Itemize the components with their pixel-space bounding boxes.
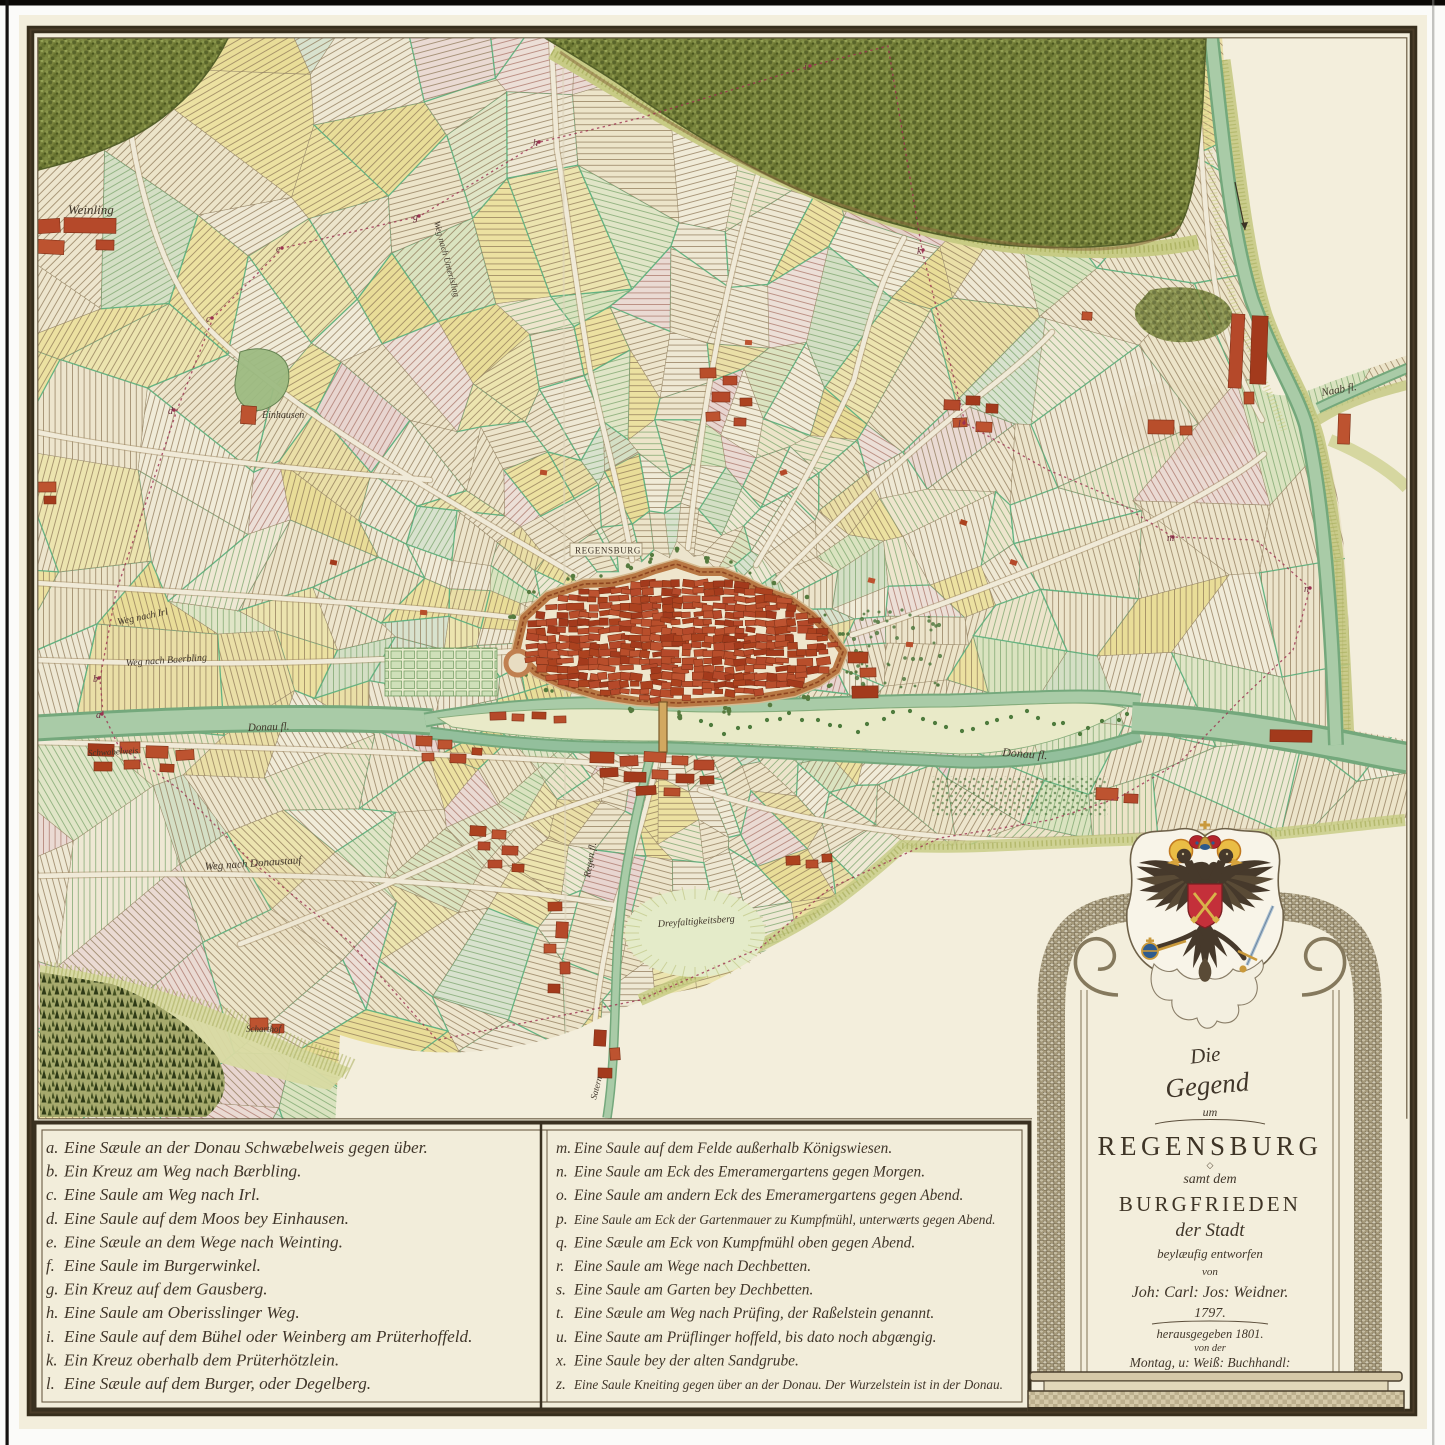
svg-text:x.: x. [555,1352,567,1369]
svg-text:beylæufig entworfen: beylæufig entworfen [1157,1246,1263,1261]
svg-text:Eine Saule auf dem Moos bey Ei: Eine Saule auf dem Moos bey Einhausen. [63,1209,349,1228]
svg-text:Ein Kreuz auf dem Gausberg.: Ein Kreuz auf dem Gausberg. [63,1280,268,1299]
svg-text:Scharthof: Scharthof [246,1024,282,1034]
svg-text:f.: f. [46,1256,55,1275]
svg-text:a.: a. [46,1138,58,1157]
svg-text:b.: b. [46,1162,58,1181]
svg-text:Eine Saule am andern Eck des E: Eine Saule am andern Eck des Emeramergar… [573,1187,963,1204]
svg-text:z.: z. [555,1376,566,1393]
svg-text:von der: von der [1194,1343,1227,1354]
svg-text:Eine Saule Kneiting gegen über: Eine Saule Kneiting gegen über an der Do… [573,1377,1003,1392]
svg-text:Eine Sæule am Eck von Kumpfmüh: Eine Sæule am Eck von Kumpfmühl oben geg… [573,1234,915,1251]
svg-text:r.: r. [556,1258,564,1275]
svg-text:l.: l. [46,1374,55,1393]
svg-text:REGENSBURG: REGENSBURG [575,546,641,556]
svg-text:h: h [533,138,538,149]
svg-text:Eine Saule am Weg nach Irl.: Eine Saule am Weg nach Irl. [63,1185,260,1204]
svg-text:Eine Saule am Oberisslinger We: Eine Saule am Oberisslinger Weg. [63,1303,300,1322]
svg-text:o.: o. [556,1187,568,1204]
svg-text:n.: n. [556,1164,568,1181]
svg-text:u.: u. [556,1329,568,1346]
svg-text:Einhausen: Einhausen [261,410,304,421]
svg-text:d.: d. [46,1209,58,1228]
svg-text:m: m [1167,533,1174,544]
svg-text:Eine Sæule auf dem Burger, ode: Eine Sæule auf dem Burger, oder Degelber… [63,1374,371,1393]
svg-text:g.: g. [46,1280,58,1299]
svg-text:Eine Saule am Garten bey Dechb: Eine Saule am Garten bey Dechbetten. [573,1282,813,1299]
svg-text:Joh: Carl: Jos: Weidner.: Joh: Carl: Jos: Weidner. [1132,1284,1289,1301]
svg-text:Donau fl.: Donau fl. [247,721,290,734]
svg-text:k: k [917,246,922,257]
svg-text:von: von [1202,1266,1218,1278]
svg-text:Ein Kreuz am Weg nach Bærbling: Ein Kreuz am Weg nach Bærbling. [63,1162,301,1181]
svg-text:Eine Saule am Eck der Gartenma: Eine Saule am Eck der Gartenmauer zu Kum… [573,1212,996,1227]
svg-text:c: c [206,314,211,325]
svg-text:p.: p. [555,1211,568,1228]
svg-text:q.: q. [556,1234,568,1251]
svg-text:um: um [1203,1105,1218,1119]
svg-text:Eine Saule auf dem Felde außer: Eine Saule auf dem Felde außerhalb König… [573,1140,892,1157]
svg-text:Eine Sæule an der Donau Schwæb: Eine Sæule an der Donau Schwæbelweis geg… [63,1138,428,1157]
svg-text:e: e [276,244,281,255]
svg-text:Eine Saule am Wege nach Dechbe: Eine Saule am Wege nach Dechbetten. [573,1258,811,1275]
svg-text:Weinling: Weinling [68,202,114,217]
svg-text:k.: k. [46,1350,57,1369]
svg-text:t.: t. [556,1305,564,1322]
svg-text:e.: e. [46,1232,57,1251]
svg-text:Die: Die [1188,1042,1222,1069]
svg-text:i.: i. [46,1327,55,1346]
svg-text:REGENSBURG: REGENSBURG [1097,1131,1322,1161]
svg-text:i: i [804,62,807,73]
svg-text:der Stadt: der Stadt [1175,1220,1245,1241]
svg-text:Eine Saule auf dem Bühel oder: Eine Saule auf dem Bühel oder Weinberg a… [63,1327,472,1346]
svg-text:m.: m. [556,1140,571,1157]
svg-text:Eine Saule im Burgerwinkel.: Eine Saule im Burgerwinkel. [63,1256,261,1275]
svg-text:Eine Sæule an dem Wege nach We: Eine Sæule an dem Wege nach Weinting. [63,1232,343,1251]
svg-text:b: b [93,674,98,685]
svg-text:s.: s. [556,1282,566,1299]
svg-text:a: a [96,710,101,721]
svg-text:h.: h. [46,1303,58,1322]
svg-text:samt dem: samt dem [1183,1172,1236,1187]
svg-text:Eine Saule bey der alten Sandg: Eine Saule bey der alten Sandgrube. [573,1352,799,1369]
svg-text:Ein Kreuz oberhalb dem Prüterh: Ein Kreuz oberhalb dem Prüterhötzlein. [63,1350,339,1369]
svg-text:l: l [958,419,961,430]
svg-text:1797.: 1797. [1194,1306,1226,1321]
svg-text:c.: c. [46,1185,57,1204]
svg-text:Eine Saule am Eck des Emeramer: Eine Saule am Eck des Emeramergartens ge… [573,1164,925,1181]
svg-text:g: g [413,212,418,223]
svg-text:◇: ◇ [1207,1160,1214,1170]
svg-text:Eine Sæule am Weg nach Prüfing: Eine Sæule am Weg nach Prüfing, der Raße… [573,1305,934,1322]
svg-text:BURGFRIEDEN: BURGFRIEDEN [1119,1192,1301,1216]
svg-text:Eine Saute am Prüflinger hoffe: Eine Saute am Prüflinger hoffeld, bis da… [573,1329,937,1346]
svg-text:n: n [1304,584,1309,595]
svg-text:Montag, u: Weiß: Buchhandl:: Montag, u: Weiß: Buchhandl: [1129,1355,1291,1370]
svg-text:herausgegeben 1801.: herausgegeben 1801. [1157,1327,1264,1341]
